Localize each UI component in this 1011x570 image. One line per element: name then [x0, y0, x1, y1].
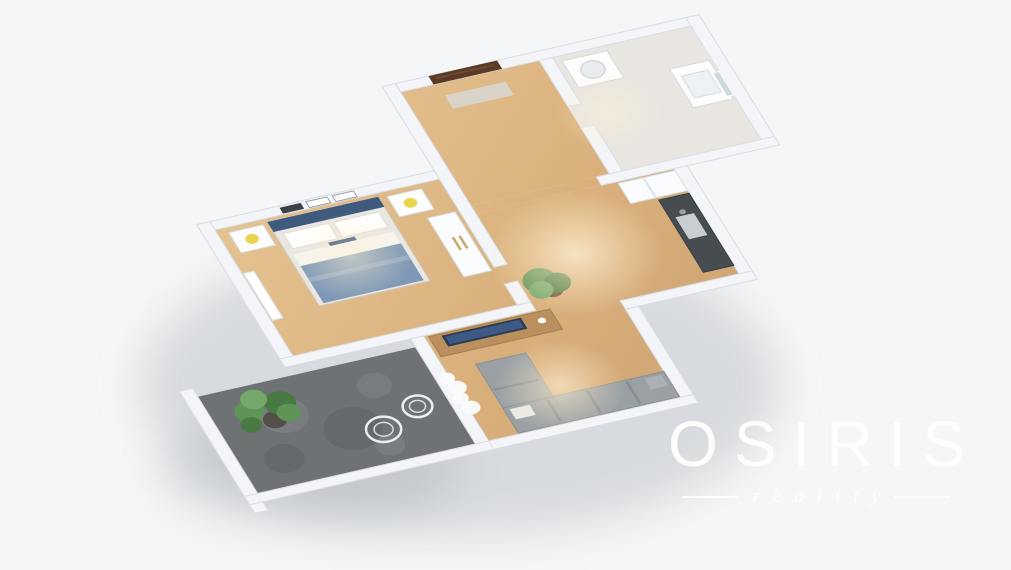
- nightstand-lamp-right: [404, 198, 418, 208]
- render-canvas: OSIRIS reality: [0, 0, 1011, 570]
- floor-light-pool: [555, 73, 663, 151]
- balcony-stone-patch: [357, 373, 392, 398]
- watermark-line-right: [894, 496, 950, 498]
- balcony-curtain: [448, 381, 467, 395]
- nightstand-lamp-left: [245, 234, 259, 244]
- floor-light-pool: [291, 212, 413, 300]
- floor-light-pool: [495, 339, 625, 433]
- kitchen-faucet: [679, 209, 686, 214]
- brand-title: OSIRIS: [668, 412, 981, 476]
- balcony-curtain: [462, 401, 481, 415]
- palm-frond: [241, 417, 263, 433]
- palm-frond: [277, 404, 301, 422]
- watermark-line-left: [683, 496, 739, 498]
- brand-subtitle: reality: [753, 486, 893, 508]
- palm-frond: [240, 390, 267, 410]
- floor-light-pool: [488, 190, 664, 317]
- cabinet-decor: [538, 318, 546, 324]
- balcony-stone-patch: [264, 444, 305, 473]
- balcony-stone-patch: [375, 434, 405, 456]
- brand-watermark: OSIRIS reality: [668, 412, 965, 508]
